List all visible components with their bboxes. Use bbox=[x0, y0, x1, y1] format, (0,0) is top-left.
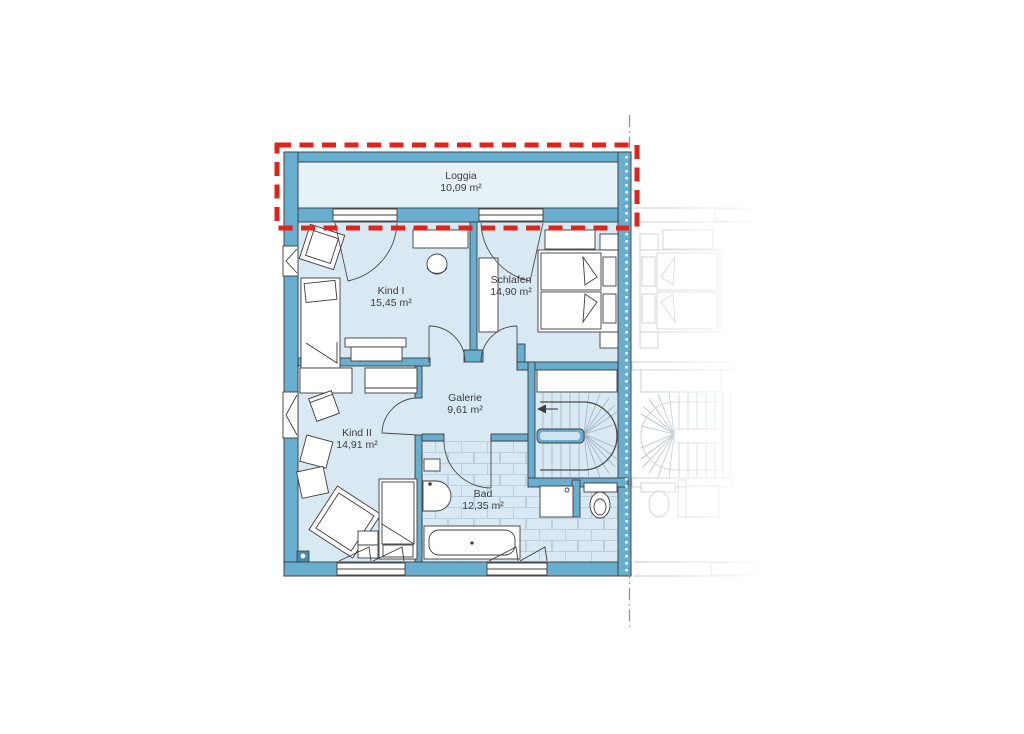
wall-bad-north-right bbox=[491, 434, 528, 441]
built-in-closet bbox=[537, 370, 617, 392]
label-schlafen: Schlafen bbox=[491, 274, 532, 286]
label-kind2-area: 14,91 m² bbox=[336, 439, 378, 451]
label-galerie: Galerie bbox=[448, 392, 482, 404]
wc bbox=[590, 492, 610, 518]
main-unit: Loggia 10,09 m² Kind I 15,45 m² Schlafen… bbox=[283, 152, 631, 576]
label-loggia-area: 10,09 m² bbox=[440, 182, 482, 194]
bath-shelf bbox=[424, 459, 440, 471]
pillow bbox=[383, 545, 413, 557]
pillow bbox=[304, 280, 337, 302]
label-kind1-area: 15,45 m² bbox=[370, 297, 412, 309]
stair-center-rail-inner bbox=[540, 432, 580, 440]
sink-faucet bbox=[428, 482, 432, 486]
wall-stub-cap bbox=[464, 350, 483, 362]
left-outer-wall bbox=[284, 152, 298, 576]
nightstand bbox=[600, 332, 618, 348]
wc-cistern bbox=[584, 483, 617, 492]
wall-kind1-schlafen bbox=[470, 222, 477, 350]
wall-bad-north-left bbox=[422, 434, 444, 441]
dresser bbox=[351, 347, 402, 361]
bathtub-drain bbox=[470, 541, 473, 544]
label-bad: Bad bbox=[474, 488, 493, 500]
window-kind2-left bbox=[283, 392, 298, 438]
nightstand bbox=[600, 234, 618, 250]
label-loggia: Loggia bbox=[445, 170, 477, 182]
cushion bbox=[297, 466, 329, 498]
floor-outlet-dot bbox=[301, 554, 306, 559]
label-kind2: Kind II bbox=[342, 427, 372, 439]
label-galerie-area: 9,61 m² bbox=[447, 404, 483, 416]
desk bbox=[300, 368, 352, 393]
desk bbox=[413, 230, 468, 248]
bottom-outer-wall bbox=[284, 562, 631, 576]
shower bbox=[540, 486, 573, 517]
pillow bbox=[603, 257, 616, 286]
loggia-top-wall bbox=[284, 152, 631, 162]
bedside-dresser bbox=[358, 531, 378, 558]
label-schlafen-area: 14,90 m² bbox=[490, 286, 532, 298]
sideboard bbox=[345, 338, 406, 347]
mattress bbox=[541, 253, 601, 290]
neighbor-fade-overlay bbox=[631, 95, 891, 645]
neighbor-unit-mirrored bbox=[631, 95, 891, 645]
sink bbox=[423, 481, 451, 511]
mattress bbox=[382, 482, 414, 544]
shelf bbox=[365, 368, 417, 393]
label-bad-area: 12,35 m² bbox=[462, 500, 504, 512]
mattress bbox=[541, 292, 601, 329]
dresser bbox=[545, 230, 595, 249]
pillow bbox=[603, 294, 616, 323]
label-kind1: Kind I bbox=[378, 285, 405, 297]
floor-plan-page: Loggia 10,09 m² Kind I 15,45 m² Schlafen… bbox=[0, 0, 1024, 734]
wall-stairs-west bbox=[528, 362, 535, 478]
floor-plan-drawing: Loggia 10,09 m² Kind I 15,45 m² Schlafen… bbox=[0, 0, 1024, 734]
